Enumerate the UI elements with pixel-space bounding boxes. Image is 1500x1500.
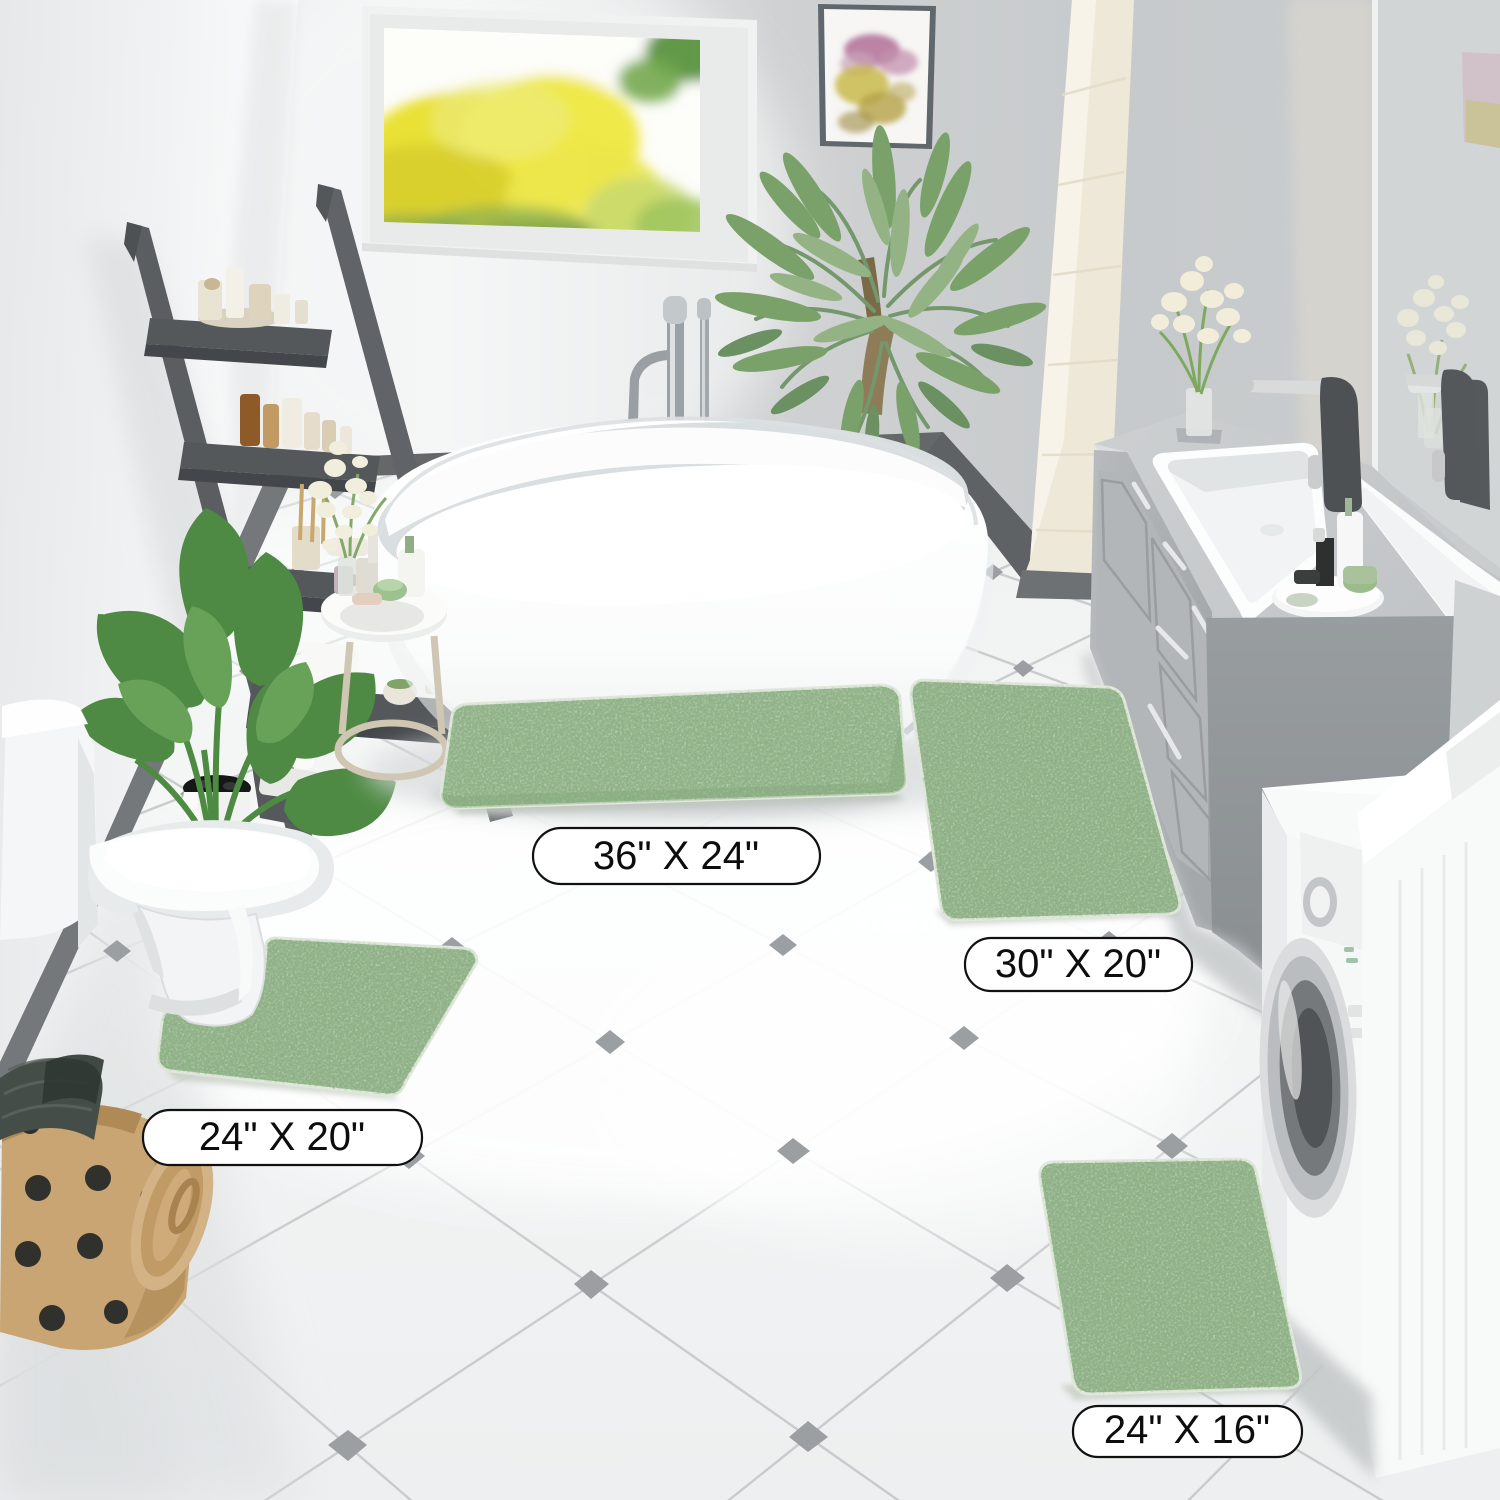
svg-text:36" X 24": 36" X 24"	[593, 834, 759, 878]
svg-text:24" X 16": 24" X 16"	[1104, 1408, 1270, 1452]
svg-text:24" X 20": 24" X 20"	[199, 1115, 365, 1159]
svg-text:30" X 20": 30" X 20"	[995, 942, 1161, 986]
